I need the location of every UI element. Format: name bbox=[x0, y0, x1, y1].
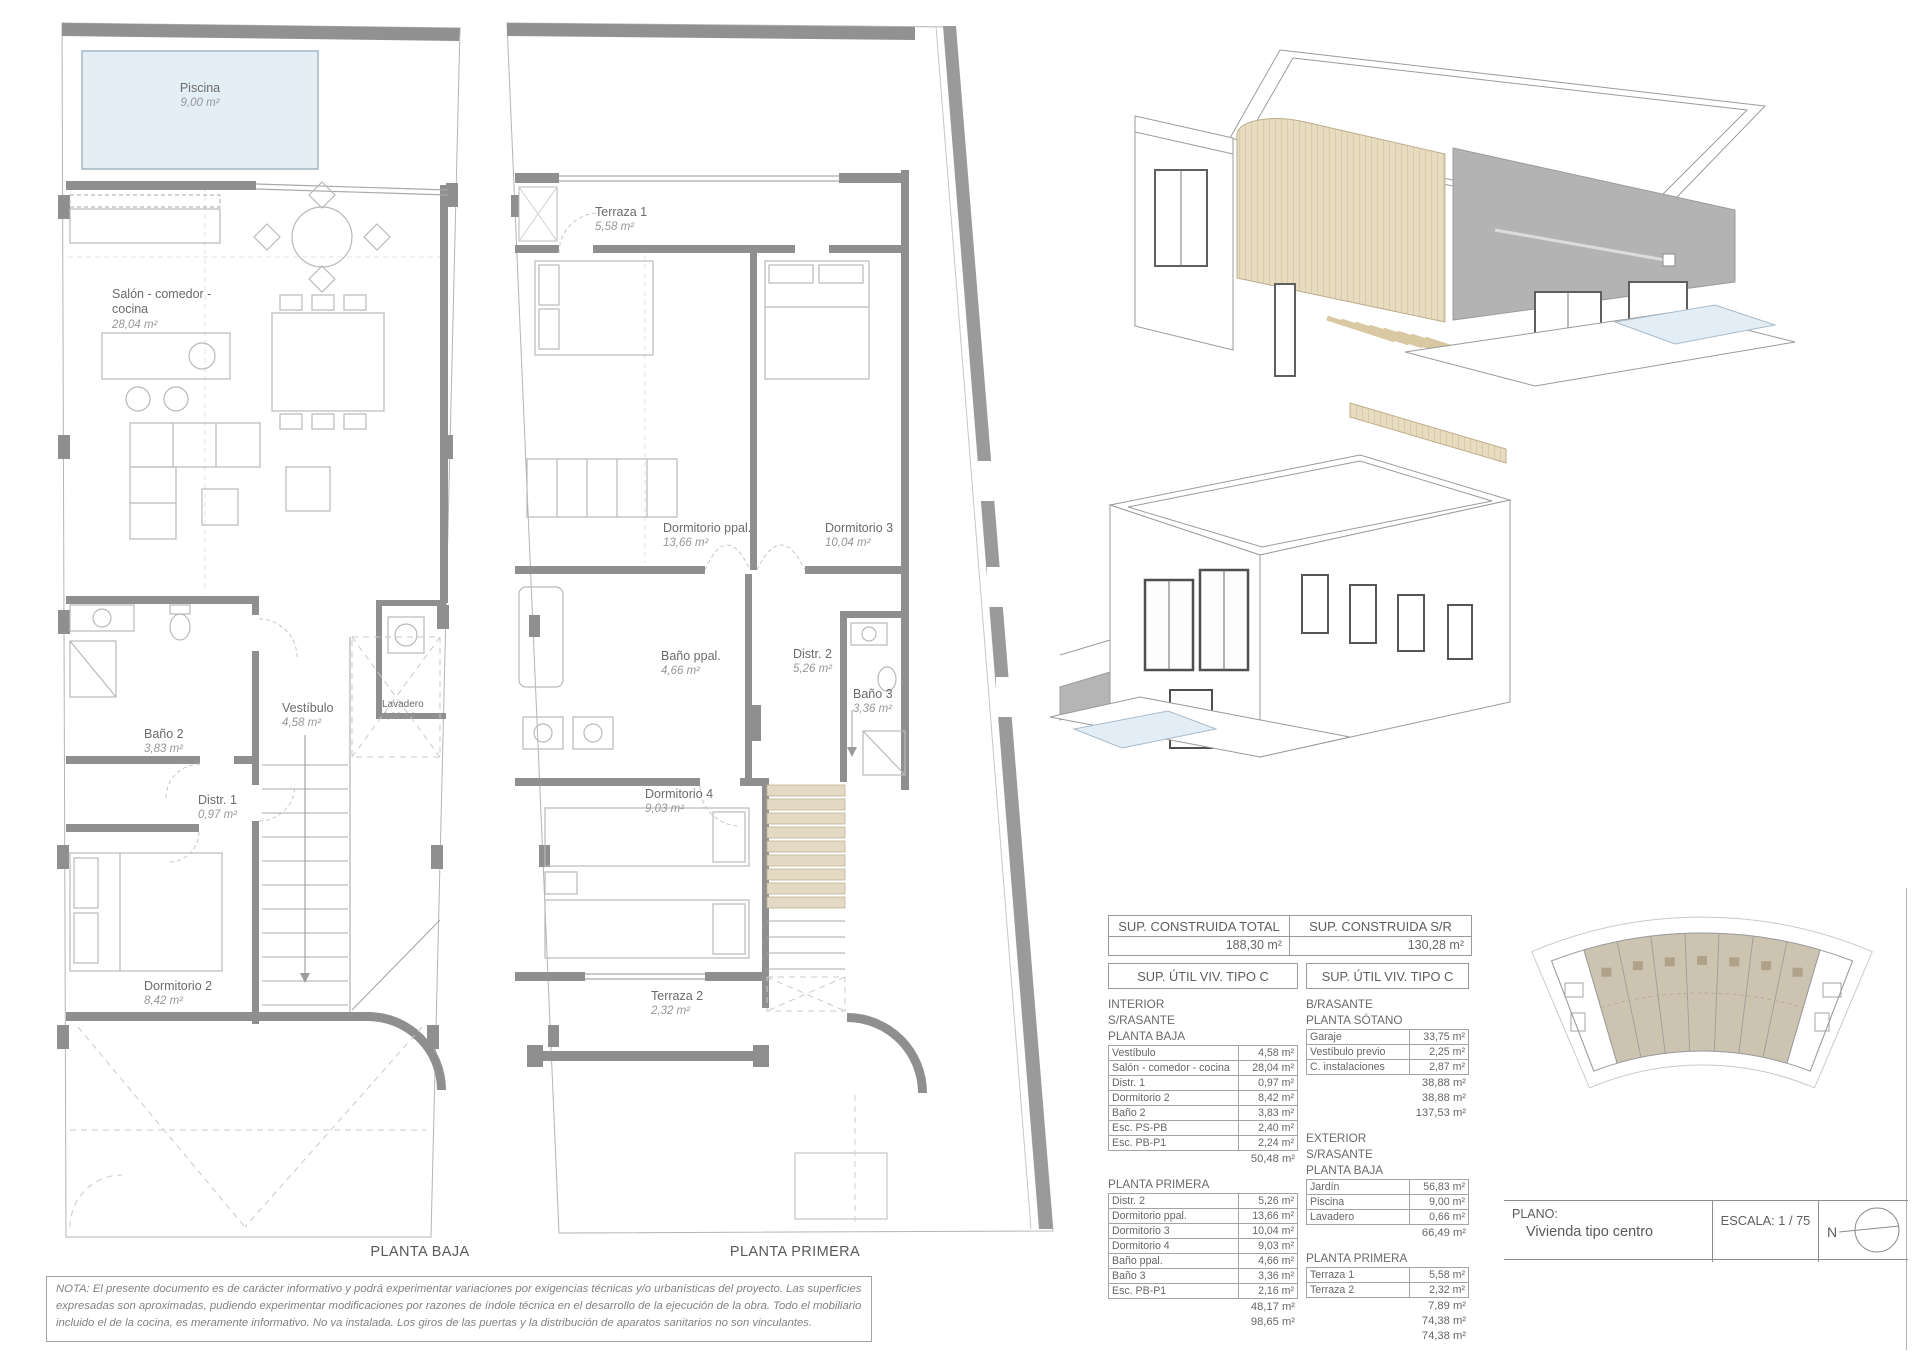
site-plan-thumbnail bbox=[1505, 893, 1903, 1079]
subtotal-value: 74,38 m² bbox=[1306, 1314, 1469, 1329]
timber-slat-wall bbox=[1237, 119, 1445, 322]
room-area-cell: 3,83 m² bbox=[1239, 1106, 1298, 1121]
room-label-distr1: Distr. 1 0,97 m² bbox=[198, 793, 237, 822]
room-label-dormitorio-ppal: Dormitorio ppal. 13,66 m² bbox=[663, 521, 751, 550]
rail-end bbox=[1663, 254, 1675, 266]
room-area-cell: 3,36 m² bbox=[1239, 1269, 1298, 1284]
table-row: Dormitorio 310,04 m² bbox=[1109, 1224, 1298, 1239]
room-area-cell: 9,00 m² bbox=[1410, 1195, 1469, 1210]
table-row: C. instalaciones2,87 m² bbox=[1307, 1060, 1469, 1075]
subtotal-value: 38,88 m² bbox=[1306, 1076, 1469, 1091]
useful-areas-header-left: SUP. ÚTIL VIV. TIPO C bbox=[1108, 963, 1298, 989]
room-label-lavadero: Lavadero 0,66 m² bbox=[382, 699, 444, 723]
room-area-cell: 2,40 m² bbox=[1239, 1121, 1298, 1136]
table-row: Dormitorio 28,42 m² bbox=[1109, 1091, 1298, 1106]
room-label-bano2: Baño 2 3,83 m² bbox=[144, 727, 184, 756]
title-block-north: N bbox=[1818, 1201, 1908, 1262]
subtotal-value: 48,17 m² bbox=[1108, 1300, 1298, 1315]
table-row: Distr. 25,26 m² bbox=[1109, 1194, 1298, 1209]
table-row: Baño 33,36 m² bbox=[1109, 1269, 1298, 1284]
section-label: PLANTA PRIMERA bbox=[1108, 1176, 1298, 1192]
room-area-cell: 4,58 m² bbox=[1239, 1046, 1298, 1061]
room-area-cell: 13,66 m² bbox=[1239, 1209, 1298, 1224]
subtotal-value: 66,49 m² bbox=[1306, 1226, 1469, 1241]
room-label-vestibulo: Vestíbulo 4,58 m² bbox=[282, 701, 333, 730]
room-label-distr2: Distr. 2 5,26 m² bbox=[793, 647, 832, 676]
plot-outline bbox=[62, 23, 460, 1237]
floor-plan-planta-baja: Piscina 9,00 m² Salón - comedor - cocina… bbox=[50, 15, 475, 1250]
section-label: PLANTA BAJA bbox=[1306, 1162, 1469, 1178]
table-row: Esc. PS-PB2,40 m² bbox=[1109, 1121, 1298, 1136]
table-row: Lavadero0,66 m² bbox=[1307, 1210, 1469, 1225]
balcony-rail bbox=[1060, 640, 1110, 655]
table-row: Esc. PB-P12,16 m² bbox=[1109, 1284, 1298, 1299]
room-name-cell: Distr. 2 bbox=[1109, 1194, 1239, 1209]
room-area-cell: 2,25 m² bbox=[1410, 1045, 1469, 1060]
table-row: Terraza 15,58 m² bbox=[1307, 1268, 1469, 1283]
room-name-cell: Lavadero bbox=[1307, 1210, 1410, 1225]
table-row: Terraza 22,32 m² bbox=[1307, 1283, 1469, 1298]
room-label-terraza1: Terraza 1 5,58 m² bbox=[595, 205, 647, 234]
north-arrow-icon: N bbox=[1819, 1201, 1909, 1257]
room-name-cell: Garaje bbox=[1307, 1030, 1410, 1045]
room-name-cell: Vestíbulo previo bbox=[1307, 1045, 1410, 1060]
areas-table: Distr. 25,26 m²Dormitorio ppal.13,66 m²D… bbox=[1108, 1193, 1298, 1299]
planta-primera-drawing bbox=[495, 15, 1055, 1250]
room-label-bano-ppal: Baño ppal. 4,66 m² bbox=[661, 649, 721, 678]
table-row: Jardín56,83 m² bbox=[1307, 1180, 1469, 1195]
areas-table: Garaje33,75 m²Vestíbulo previo2,25 m²C. … bbox=[1306, 1029, 1469, 1075]
room-name-cell: Dormitorio ppal. bbox=[1109, 1209, 1239, 1224]
room-name-cell: Dormitorio 2 bbox=[1109, 1091, 1239, 1106]
table-row: Esc. PB-P12,24 m² bbox=[1109, 1136, 1298, 1151]
areas-table: Jardín56,83 m²Piscina9,00 m²Lavadero0,66… bbox=[1306, 1179, 1469, 1225]
room-name-cell: Baño 2 bbox=[1109, 1106, 1239, 1121]
section-label: PLANTA PRIMERA bbox=[1306, 1250, 1469, 1266]
room-area-cell: 8,42 m² bbox=[1239, 1091, 1298, 1106]
room-area-cell: 2,32 m² bbox=[1410, 1283, 1469, 1298]
subtotal-value: 74,38 m² bbox=[1306, 1329, 1469, 1344]
useful-areas-header-right: SUP. ÚTIL VIV. TIPO C bbox=[1306, 963, 1469, 989]
room-name-cell: Terraza 2 bbox=[1307, 1283, 1410, 1298]
plano-value: Vivienda tipo centro bbox=[1504, 1221, 1712, 1240]
room-label-bano3: Baño 3 3,36 m² bbox=[853, 687, 893, 716]
room-name-cell: Esc. PB-P1 bbox=[1109, 1136, 1239, 1151]
useful-areas-exterior: SUP. ÚTIL VIV. TIPO C B/RASANTEPLANTA SÓ… bbox=[1306, 963, 1469, 1353]
north-letter: N bbox=[1827, 1224, 1837, 1240]
room-name-cell: Piscina bbox=[1307, 1195, 1410, 1210]
room-area-cell: 10,04 m² bbox=[1239, 1224, 1298, 1239]
room-name-cell: Baño ppal. bbox=[1109, 1254, 1239, 1269]
table-row: Vestíbulo4,58 m² bbox=[1109, 1046, 1298, 1061]
table-row: Vestíbulo previo2,25 m² bbox=[1307, 1045, 1469, 1060]
subtotal-value: 137,53 m² bbox=[1306, 1106, 1469, 1121]
axonometric-view-top bbox=[975, 20, 1835, 390]
table-row: Baño 23,83 m² bbox=[1109, 1106, 1298, 1121]
room-area-cell: 4,66 m² bbox=[1239, 1254, 1298, 1269]
areas-table: Terraza 15,58 m²Terraza 22,32 m² bbox=[1306, 1267, 1469, 1298]
room-name-cell: Esc. PS-PB bbox=[1109, 1121, 1239, 1136]
subtotal-value: 50,48 m² bbox=[1108, 1152, 1298, 1167]
escala-value: ESCALA: 1 / 75 bbox=[1713, 1201, 1818, 1228]
section-label: INTERIOR bbox=[1108, 996, 1298, 1012]
room-name-cell: Dormitorio 3 bbox=[1109, 1224, 1239, 1239]
table-row: Baño ppal.4,66 m² bbox=[1109, 1254, 1298, 1269]
title-block: PLANO: Vivienda tipo centro ESCALA: 1 / … bbox=[1504, 1200, 1908, 1260]
useful-areas-left-blocks: INTERIORS/RASANTEPLANTA BAJAVestíbulo4,5… bbox=[1108, 996, 1298, 1330]
plan-sheet: Piscina 9,00 m² Salón - comedor - cocina… bbox=[0, 0, 1920, 1357]
table-row: Distr. 10,97 m² bbox=[1109, 1076, 1298, 1091]
room-area-cell: 0,66 m² bbox=[1410, 1210, 1469, 1225]
sheet-frame-line bbox=[1906, 888, 1907, 1350]
room-area-cell: 56,83 m² bbox=[1410, 1180, 1469, 1195]
room-area-cell: 2,16 m² bbox=[1239, 1284, 1298, 1299]
north-pointer bbox=[1839, 1226, 1899, 1232]
table-row: Piscina9,00 m² bbox=[1307, 1195, 1469, 1210]
planta-baja-drawing bbox=[50, 15, 475, 1250]
room-area-cell: 33,75 m² bbox=[1410, 1030, 1469, 1045]
room-area-cell: 0,97 m² bbox=[1239, 1076, 1298, 1091]
section-label: PLANTA SÓTANO bbox=[1306, 1012, 1469, 1028]
title-block-escala: ESCALA: 1 / 75 bbox=[1712, 1201, 1818, 1262]
room-area-cell: 2,24 m² bbox=[1239, 1136, 1298, 1151]
section-label: B/RASANTE bbox=[1306, 996, 1469, 1012]
floor-plan-planta-primera: Terraza 1 5,58 m² Dormitorio ppal. 13,66… bbox=[495, 15, 1055, 1250]
caption-planta-primera: PLANTA PRIMERA bbox=[685, 1244, 905, 1260]
useful-areas-right-blocks: B/RASANTEPLANTA SÓTANOGaraje33,75 m²Vest… bbox=[1306, 996, 1469, 1344]
table-row: Garaje33,75 m² bbox=[1307, 1030, 1469, 1045]
table-row: Dormitorio ppal.13,66 m² bbox=[1109, 1209, 1298, 1224]
room-label-salon: Salón - comedor - cocina 28,04 m² bbox=[112, 287, 230, 332]
room-name-cell: Jardín bbox=[1307, 1180, 1410, 1195]
areas-table: Vestíbulo4,58 m²Salón - comedor - cocina… bbox=[1108, 1045, 1298, 1151]
built-total-header: SUP. CONSTRUIDA TOTAL bbox=[1109, 916, 1290, 937]
room-name-cell: Distr. 1 bbox=[1109, 1076, 1239, 1091]
table-row: Salón - comedor - cocina28,04 m² bbox=[1109, 1061, 1298, 1076]
plano-label: PLANO: bbox=[1504, 1201, 1712, 1221]
note-box: NOTA: El presente documento es de caráct… bbox=[46, 1276, 872, 1342]
useful-areas-interior: SUP. ÚTIL VIV. TIPO C INTERIORS/RASANTEP… bbox=[1108, 963, 1298, 1339]
room-name-cell: Vestíbulo bbox=[1109, 1046, 1239, 1061]
room-area-cell: 5,58 m² bbox=[1410, 1268, 1469, 1283]
tall-window bbox=[1275, 284, 1295, 376]
room-area-cell: 2,87 m² bbox=[1410, 1060, 1469, 1075]
room-label-dormitorio3: Dormitorio 3 10,04 m² bbox=[825, 521, 893, 550]
room-name-cell: Dormitorio 4 bbox=[1109, 1239, 1239, 1254]
room-label-piscina: Piscina 9,00 m² bbox=[142, 81, 258, 110]
room-name-cell: Salón - comedor - cocina bbox=[1109, 1061, 1239, 1076]
section-label: EXTERIOR bbox=[1306, 1130, 1469, 1146]
section-label: S/RASANTE bbox=[1108, 1012, 1298, 1028]
built-area-table: SUP. CONSTRUIDA TOTAL SUP. CONSTRUIDA S/… bbox=[1108, 915, 1472, 956]
axonometric-view-bottom bbox=[1050, 385, 1530, 760]
room-area-cell: 28,04 m² bbox=[1239, 1061, 1298, 1076]
section-label: PLANTA BAJA bbox=[1108, 1028, 1298, 1044]
subtotal-value: 7,89 m² bbox=[1306, 1299, 1469, 1314]
built-total-value: 188,30 m² bbox=[1109, 937, 1290, 955]
room-name-cell: Terraza 1 bbox=[1307, 1268, 1410, 1283]
area-block: INTERIORS/RASANTEPLANTA BAJAVestíbulo4,5… bbox=[1108, 996, 1298, 1167]
roof-slat-band bbox=[1350, 403, 1506, 463]
area-block: PLANTA PRIMERATerraza 15,58 m²Terraza 22… bbox=[1306, 1250, 1469, 1344]
room-label-dormitorio4: Dormitorio 4 9,03 m² bbox=[645, 787, 713, 816]
subtotal-value: 98,65 m² bbox=[1108, 1315, 1298, 1330]
stairs bbox=[767, 785, 845, 1011]
room-label-dormitorio2: Dormitorio 2 8,42 m² bbox=[144, 979, 212, 1008]
built-sr-value: 130,28 m² bbox=[1290, 937, 1471, 955]
room-name-cell: C. instalaciones bbox=[1307, 1060, 1410, 1075]
table-row: Dormitorio 49,03 m² bbox=[1109, 1239, 1298, 1254]
room-area-cell: 5,26 m² bbox=[1239, 1194, 1298, 1209]
area-block: EXTERIORS/RASANTEPLANTA BAJAJardín56,83 … bbox=[1306, 1130, 1469, 1241]
room-name-cell: Esc. PB-P1 bbox=[1109, 1284, 1239, 1299]
room-area-cell: 9,03 m² bbox=[1239, 1239, 1298, 1254]
built-sr-header: SUP. CONSTRUIDA S/R bbox=[1290, 916, 1471, 937]
subtotal-value: 38,88 m² bbox=[1306, 1091, 1469, 1106]
area-block: B/RASANTEPLANTA SÓTANOGaraje33,75 m²Vest… bbox=[1306, 996, 1469, 1121]
title-block-plano: PLANO: Vivienda tipo centro bbox=[1504, 1201, 1712, 1262]
section-label: S/RASANTE bbox=[1306, 1146, 1469, 1162]
room-label-terraza2: Terraza 2 2,32 m² bbox=[651, 989, 703, 1018]
room-name-cell: Baño 3 bbox=[1109, 1269, 1239, 1284]
area-block: PLANTA PRIMERADistr. 25,26 m²Dormitorio … bbox=[1108, 1176, 1298, 1330]
